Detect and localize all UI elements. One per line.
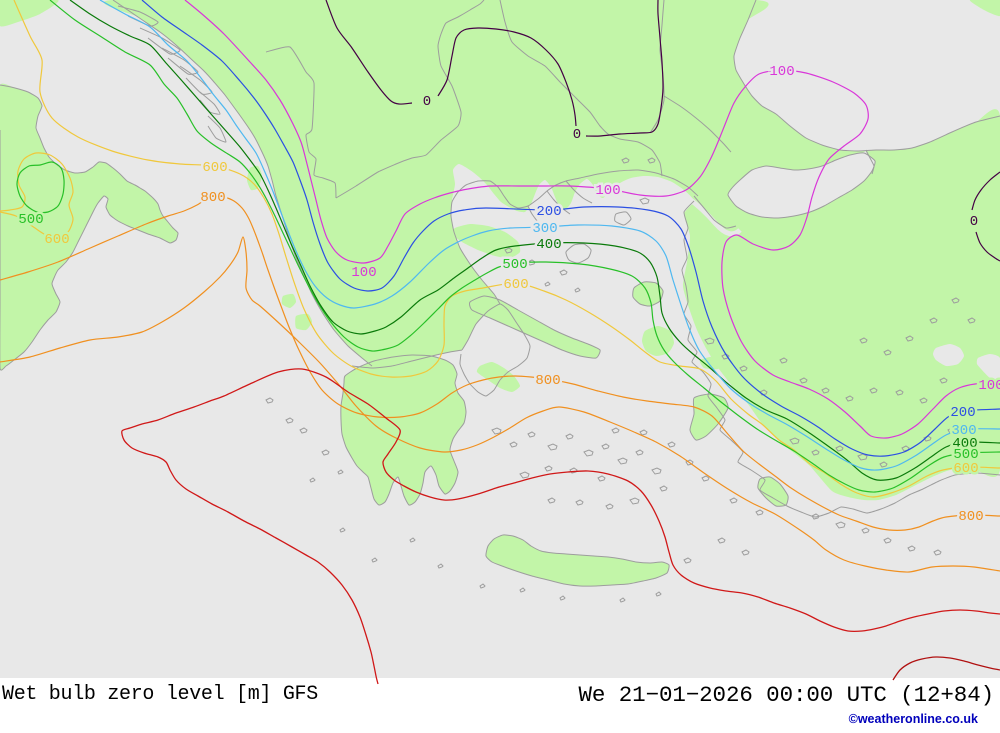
svg-text:300: 300 <box>532 221 557 237</box>
svg-text:500: 500 <box>18 212 43 228</box>
svg-text:0: 0 <box>423 94 431 110</box>
svg-text:600: 600 <box>202 160 227 176</box>
svg-text:200: 200 <box>950 405 975 421</box>
svg-text:200: 200 <box>536 204 561 220</box>
svg-text:800: 800 <box>535 373 560 389</box>
svg-text:600: 600 <box>503 277 528 293</box>
svg-text:600: 600 <box>953 461 978 477</box>
svg-text:500: 500 <box>502 257 527 273</box>
svg-text:0: 0 <box>573 127 581 143</box>
svg-text:100: 100 <box>978 378 1000 394</box>
svg-text:800: 800 <box>200 190 225 206</box>
svg-text:0: 0 <box>970 214 978 230</box>
svg-text:100: 100 <box>595 183 620 199</box>
svg-text:100: 100 <box>769 64 794 80</box>
svg-text:400: 400 <box>536 237 561 253</box>
svg-text:100: 100 <box>351 265 376 281</box>
svg-text:800: 800 <box>958 509 983 525</box>
svg-text:600: 600 <box>44 232 69 248</box>
